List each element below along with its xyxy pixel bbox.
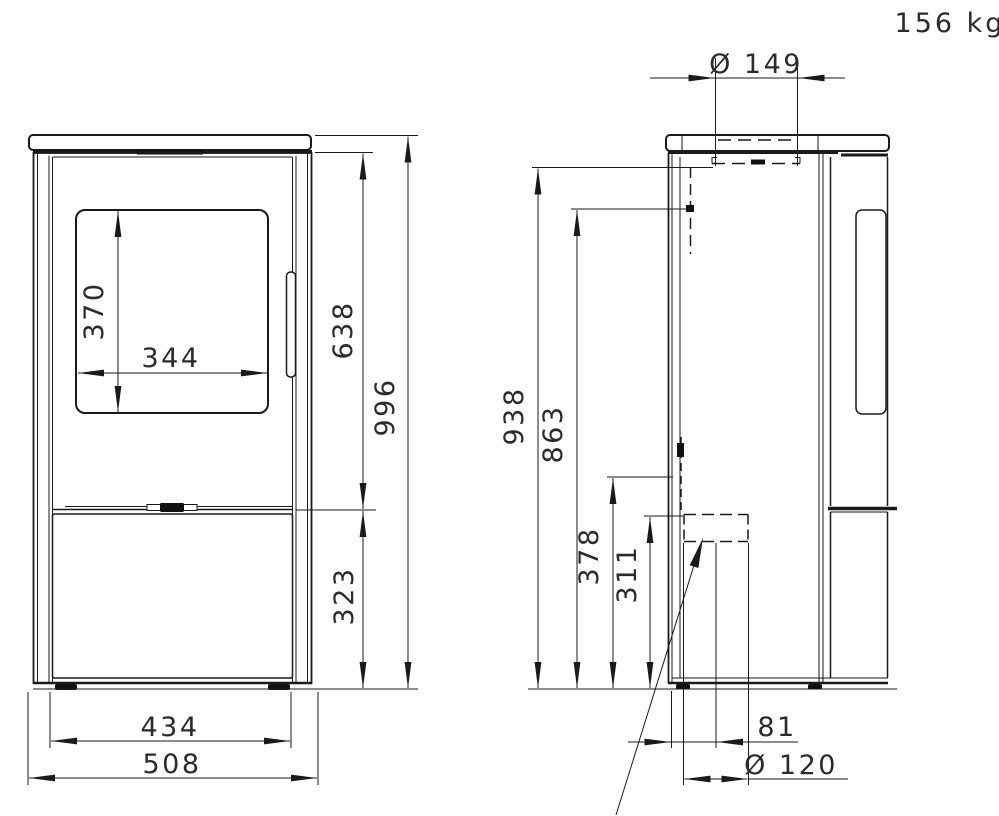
front-view	[29, 135, 312, 690]
weight-label: 156 kg	[895, 8, 999, 39]
dim-rear-to-intake-center: 81	[757, 712, 796, 743]
side-door-handle	[856, 210, 886, 414]
stove-dimension-drawing: 156 kg 370 344 638 996 323 434 508 Ø 149…	[0, 0, 999, 816]
front-view-dimensions	[28, 136, 418, 786]
dim-glass-width: 344	[141, 343, 200, 374]
rear-connection-mark	[677, 443, 684, 457]
dim-glass-height: 370	[79, 281, 110, 340]
air-intake-hidden-box	[684, 515, 748, 542]
dim-floor-to-air-intake-top: 311	[612, 544, 643, 603]
dim-floor-to-rear-flue-center: 863	[538, 404, 569, 463]
front-door-handle	[287, 272, 296, 377]
side-top-plate	[666, 135, 889, 151]
front-lower-panel	[53, 514, 293, 678]
dim-flue-collar-diameter: Ø 149	[709, 49, 803, 80]
dim-top-to-door-bottom: 638	[328, 300, 359, 359]
dim-bottom-section-height: 323	[329, 566, 360, 625]
front-top-plate	[29, 135, 311, 150]
dim-air-intake-diameter: Ø 120	[744, 750, 838, 781]
dim-overall-width: 508	[142, 749, 201, 780]
side-view-dimensions	[528, 58, 897, 815]
dim-foot-width: 434	[140, 712, 199, 743]
side-view	[666, 135, 897, 690]
technical-drawing-page: 156 kg 370 344 638 996 323 434 508 Ø 149…	[0, 0, 999, 816]
side-view-hidden-lines	[677, 140, 800, 542]
dim-overall-height: 996	[370, 377, 401, 436]
flue-collar-clamp	[751, 160, 765, 165]
front-door-latch	[160, 503, 184, 512]
dim-floor-to-flue-collar: 938	[499, 386, 530, 445]
dim-floor-to-upper-connection: 378	[574, 526, 605, 585]
